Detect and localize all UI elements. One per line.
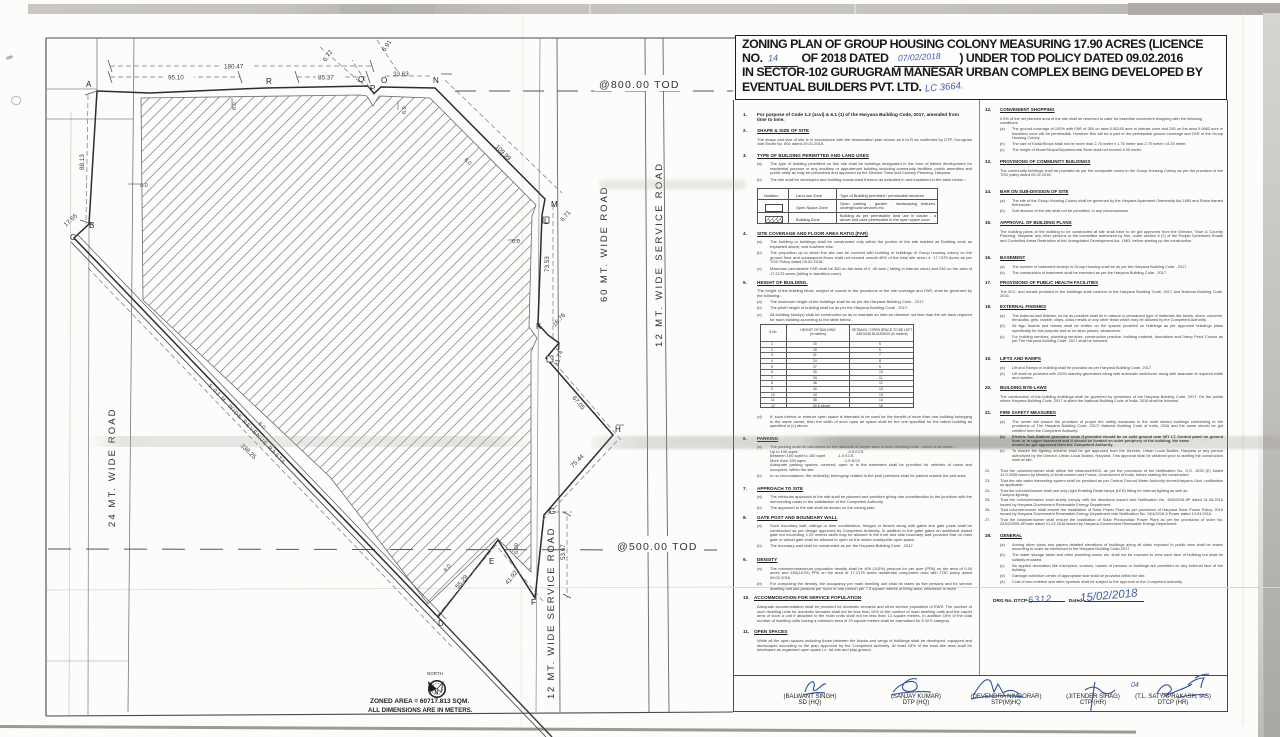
svg-text:04: 04 xyxy=(1131,682,1139,689)
svg-text:L: L xyxy=(544,217,549,226)
svg-text:53.67: 53.67 xyxy=(560,544,567,560)
svg-text:NORTH: NORTH xyxy=(427,671,443,676)
svg-text:180.47: 180.47 xyxy=(224,64,244,71)
svg-text:O: O xyxy=(381,76,387,85)
svg-text:75.44: 75.44 xyxy=(569,453,585,469)
svg-text:6.72: 6.72 xyxy=(322,49,335,64)
svg-text:F: F xyxy=(531,598,536,607)
svg-text:A: A xyxy=(86,80,92,89)
svg-text:17.65: 17.65 xyxy=(63,212,80,228)
svg-text:H: H xyxy=(615,425,621,434)
svg-text:60 MT. WIDE ROAD: 60 MT. WIDE ROAD xyxy=(599,186,610,302)
svg-text:N: N xyxy=(433,76,439,85)
svg-text:6.0: 6.0 xyxy=(402,106,408,114)
svg-text:P: P xyxy=(370,84,375,93)
svg-text:109.99: 109.99 xyxy=(494,143,513,162)
svg-text:16.76: 16.76 xyxy=(551,312,567,329)
svg-text:ZONED AREA = 60717.813 SQM.: ZONED AREA = 60717.813 SQM. xyxy=(370,698,469,705)
svg-text:85.37: 85.37 xyxy=(318,75,334,82)
svg-text:88.13: 88.13 xyxy=(79,154,86,170)
svg-text:ALL DIMENSIONS ARE IN METERS.: ALL DIMENSIONS ARE IN METERS. xyxy=(368,707,473,714)
svg-text:6.71: 6.71 xyxy=(559,209,573,223)
svg-text:N: N xyxy=(435,690,439,696)
svg-text:67.05: 67.05 xyxy=(570,395,586,412)
svg-text:G: G xyxy=(549,507,555,516)
svg-text:Q: Q xyxy=(358,75,364,84)
svg-text:6.00: 6.00 xyxy=(514,543,520,554)
svg-text:E: E xyxy=(489,557,494,566)
svg-text:@800.00 TOD: @800.00 TOD xyxy=(599,79,680,91)
svg-text:24 MT. WIDE ROAD: 24 MT. WIDE ROAD xyxy=(107,407,118,527)
svg-text:J: J xyxy=(556,343,560,352)
svg-text:6.0: 6.0 xyxy=(232,102,238,110)
svg-text:95.10: 95.10 xyxy=(168,75,184,82)
svg-text:6.91: 6.91 xyxy=(381,39,394,54)
svg-text:@500.00 TOD: @500.00 TOD xyxy=(617,541,698,553)
svg-text:B: B xyxy=(89,221,94,230)
svg-text:6.0: 6.0 xyxy=(140,183,148,189)
svg-text:41.92: 41.92 xyxy=(504,569,520,586)
svg-text:12 MT. WIDE SERVICE ROAD: 12 MT. WIDE SERVICE ROAD xyxy=(546,527,557,699)
svg-text:R: R xyxy=(266,77,272,86)
svg-text:12 MT. WIDE SERVICE ROAD: 12 MT. WIDE SERVICE ROAD xyxy=(654,162,665,347)
svg-text:73.53: 73.53 xyxy=(544,256,551,272)
svg-text:M: M xyxy=(551,200,558,209)
svg-text:C: C xyxy=(70,233,76,242)
svg-text:K: K xyxy=(536,322,542,331)
svg-text:11.74: 11.74 xyxy=(553,349,565,366)
svg-text:D: D xyxy=(438,619,444,628)
svg-text:33.63: 33.63 xyxy=(393,71,409,78)
